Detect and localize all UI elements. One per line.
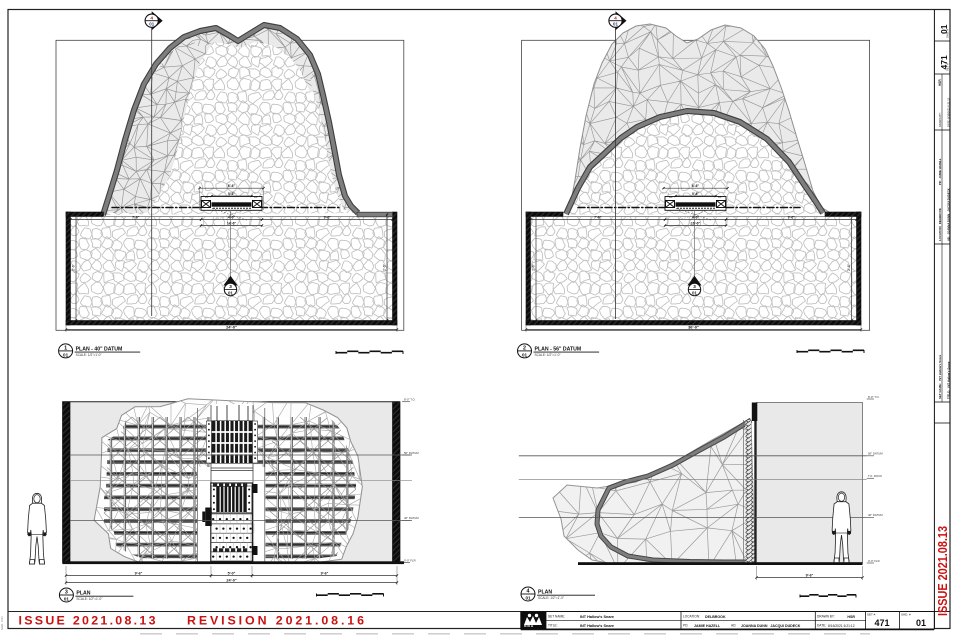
svg-text:24'-0": 24'-0": [226, 324, 237, 329]
svg-text:01: 01: [613, 22, 618, 27]
svg-text:8'-0" T.O.: 8'-0" T.O.: [404, 398, 416, 402]
svg-text:DRAWN BY:: DRAWN BY:: [938, 112, 942, 127]
svg-text:56" DATUM: 56" DATUM: [404, 451, 419, 455]
svg-text:0'-0" FLR: 0'-0" FLR: [404, 558, 416, 562]
svg-text:1: 1: [64, 345, 67, 351]
svg-text:01: 01: [525, 595, 531, 600]
svg-text:TITLE:: TITLE:: [548, 624, 558, 628]
svg-text:3: 3: [65, 589, 68, 595]
svg-text:ISSUE 2021.08.13: ISSUE 2021.08.13: [935, 526, 950, 616]
svg-text:14'-6": 14'-6": [227, 221, 237, 225]
svg-text:SCALE: 1/2"=1'-0": SCALE: 1/2"=1'-0": [538, 596, 564, 600]
svg-text:3: 3: [693, 284, 696, 289]
svg-text:01: 01: [522, 352, 528, 357]
svg-text:JAMIE HAZELL: JAMIE HAZELL: [694, 624, 721, 628]
svg-text:9'-6": 9'-6": [806, 573, 814, 577]
svg-text:TITLE: INT Hallow's Snare: TITLE: INT Hallow's Snare: [947, 361, 951, 399]
svg-text:JOANNA DUNN JACQUI DUDECK: JOANNA DUNN JACQUI DUDECK: [741, 624, 801, 628]
svg-text:SET NAME:: SET NAME:: [548, 615, 565, 619]
svg-text:01: 01: [64, 596, 70, 601]
svg-text:PLAN - 40" DATUM: PLAN - 40" DATUM: [76, 346, 123, 352]
svg-text:2'-6": 2'-6": [383, 263, 387, 271]
svg-text:5'-0": 5'-0": [228, 571, 236, 575]
svg-text:PD: JAMIE HAZELL: PD: JAMIE HAZELL: [938, 158, 942, 185]
svg-text:10": 10": [718, 195, 722, 199]
svg-text:2'-6": 2'-6": [847, 263, 851, 271]
svg-text:REVISION 2021.08.16: REVISION 2021.08.16: [187, 614, 364, 628]
svg-text:DATE: 8/16/2021 6:21:12: DATE: 8/16/2021 6:21:12: [947, 97, 951, 127]
svg-text:4'-6": 4'-6": [692, 215, 700, 219]
svg-text:SET NAME: INT Hallow's Snare: SET NAME: INT Hallow's Snare: [938, 354, 942, 399]
svg-text:10": 10": [669, 195, 673, 199]
svg-text:6'-6": 6'-6": [692, 184, 700, 188]
svg-text:01: 01: [692, 290, 697, 295]
svg-text:01: 01: [228, 290, 233, 295]
svg-text:HSR: HSR: [938, 79, 942, 86]
svg-text:AD:: AD:: [731, 624, 736, 628]
svg-text:SCALE: 1/2"=1'-0": SCALE: 1/2"=1'-0": [76, 597, 102, 601]
svg-text:471: 471: [874, 618, 889, 628]
svg-text:DELBROOK: DELBROOK: [705, 615, 726, 619]
svg-text:5'-6": 5'-6": [228, 192, 235, 196]
svg-text:PLAN: PLAN: [538, 590, 552, 596]
svg-text:01: 01: [149, 22, 154, 27]
svg-text:SHD. # 01: SHD. # 01: [0, 616, 4, 630]
svg-text:AD: JOANNA DUNN JACQUI DUDE: AD: JOANNA DUNN JACQUI DUDECK: [947, 188, 951, 241]
svg-text:4: 4: [614, 16, 617, 22]
svg-text:10": 10": [205, 195, 209, 199]
svg-text:LOCATION:: LOCATION:: [683, 615, 700, 619]
svg-text:HSR: HSR: [847, 615, 855, 619]
svg-text:40" DATUM: 40" DATUM: [868, 513, 883, 517]
svg-text:5'-6": 5'-6": [692, 192, 699, 196]
svg-text:24'-0": 24'-0": [226, 578, 237, 582]
svg-text:10": 10": [254, 195, 258, 199]
svg-text:56" DATUM: 56" DATUM: [868, 452, 883, 456]
svg-text:9'-6": 9'-6": [135, 571, 143, 575]
svg-text:PLAN - 56" DATUM: PLAN - 56" DATUM: [535, 346, 582, 352]
svg-text:SCALE: 1/2"=1'-0": SCALE: 1/2"=1'-0": [76, 353, 102, 357]
svg-text:6'-6": 6'-6": [228, 184, 236, 188]
svg-text:INT Hallow's Snare: INT Hallow's Snare: [580, 615, 614, 619]
svg-text:7'-6": 7'-6": [594, 215, 602, 219]
svg-text:36'-0": 36'-0": [688, 324, 699, 329]
svg-text:LOCATION: DELBROOK: LOCATION: DELBROOK: [938, 208, 942, 241]
svg-text:471: 471: [939, 55, 949, 69]
svg-text:4'-6": 4'-6": [228, 215, 236, 219]
svg-text:9'-6": 9'-6": [788, 215, 796, 219]
svg-text:3: 3: [229, 284, 232, 289]
svg-text:PLAN: PLAN: [76, 591, 90, 597]
svg-text:0'-0" FLR: 0'-0" FLR: [868, 559, 880, 563]
svg-text:01: 01: [63, 352, 69, 357]
svg-text:SHD. #: SHD. #: [901, 613, 911, 617]
svg-text:40" DATUM: 40" DATUM: [404, 516, 419, 520]
svg-text:N B U: N B U: [524, 624, 534, 628]
svg-text:SCALE: 1/2"=1'-0": SCALE: 1/2"=1'-0": [535, 353, 561, 357]
svg-text:7'-6": 7'-6": [132, 215, 140, 219]
svg-text:8'-0" T.O.: 8'-0" T.O.: [868, 395, 880, 399]
svg-text:PD:: PD:: [683, 624, 688, 628]
svg-text:8/16/2021 6:21:12: 8/16/2021 6:21:12: [828, 624, 855, 628]
svg-text:ISSUE 2021.08.13: ISSUE 2021.08.13: [19, 614, 156, 628]
svg-text:DATE:: DATE:: [817, 624, 826, 628]
svg-text:DRAWN BY:: DRAWN BY:: [817, 615, 835, 619]
svg-text:2: 2: [523, 345, 526, 351]
svg-text:2'-6": 2'-6": [72, 263, 76, 271]
svg-text:9'-6": 9'-6": [324, 215, 332, 219]
svg-text:2'-6": 2'-6": [532, 263, 536, 271]
svg-text:01: 01: [916, 618, 926, 628]
svg-text:INT Hallow's Snare: INT Hallow's Snare: [580, 624, 614, 628]
svg-text:4: 4: [527, 588, 530, 594]
svg-text:SET #: SET #: [867, 613, 876, 617]
svg-text:4: 4: [150, 16, 153, 22]
svg-text:16'-6": 16'-6": [691, 221, 701, 225]
svg-text:01: 01: [939, 24, 949, 34]
svg-text:9'-6": 9'-6": [321, 571, 329, 575]
svg-text:T.O. ROCK: T.O. ROCK: [868, 474, 882, 478]
